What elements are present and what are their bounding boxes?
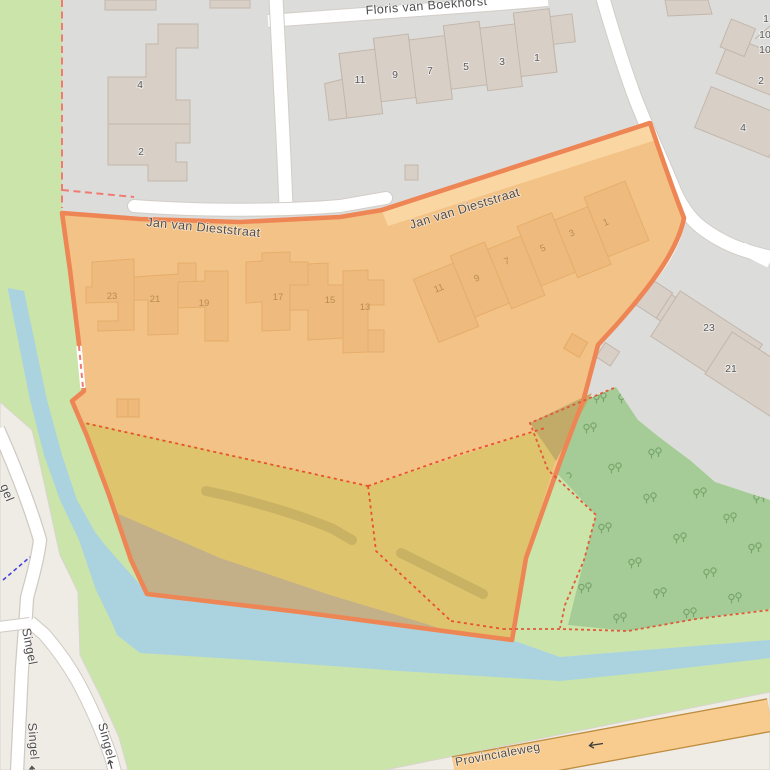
svg-text:5: 5 <box>463 61 469 73</box>
svg-text:1: 1 <box>534 52 540 64</box>
svg-text:4: 4 <box>137 79 143 91</box>
svg-text:10: 10 <box>759 44 770 56</box>
svg-text:19: 19 <box>199 298 210 309</box>
svg-text:4: 4 <box>740 122 746 134</box>
svg-text:23: 23 <box>107 291 118 302</box>
svg-text:11: 11 <box>355 74 366 86</box>
svg-text:23: 23 <box>703 322 715 334</box>
svg-text:2: 2 <box>758 75 764 87</box>
svg-text:1: 1 <box>763 13 769 25</box>
svg-text:Singel: Singel <box>25 722 42 760</box>
svg-text:7: 7 <box>427 65 433 77</box>
svg-text:2: 2 <box>138 146 144 158</box>
svg-text:10: 10 <box>759 29 770 41</box>
svg-text:3: 3 <box>499 56 505 68</box>
svg-text:21: 21 <box>150 294 161 305</box>
svg-text:9: 9 <box>392 69 398 81</box>
svg-text:21: 21 <box>725 363 737 375</box>
svg-text:15: 15 <box>325 295 336 306</box>
svg-text:17: 17 <box>273 292 284 303</box>
svg-text:13: 13 <box>360 302 371 313</box>
